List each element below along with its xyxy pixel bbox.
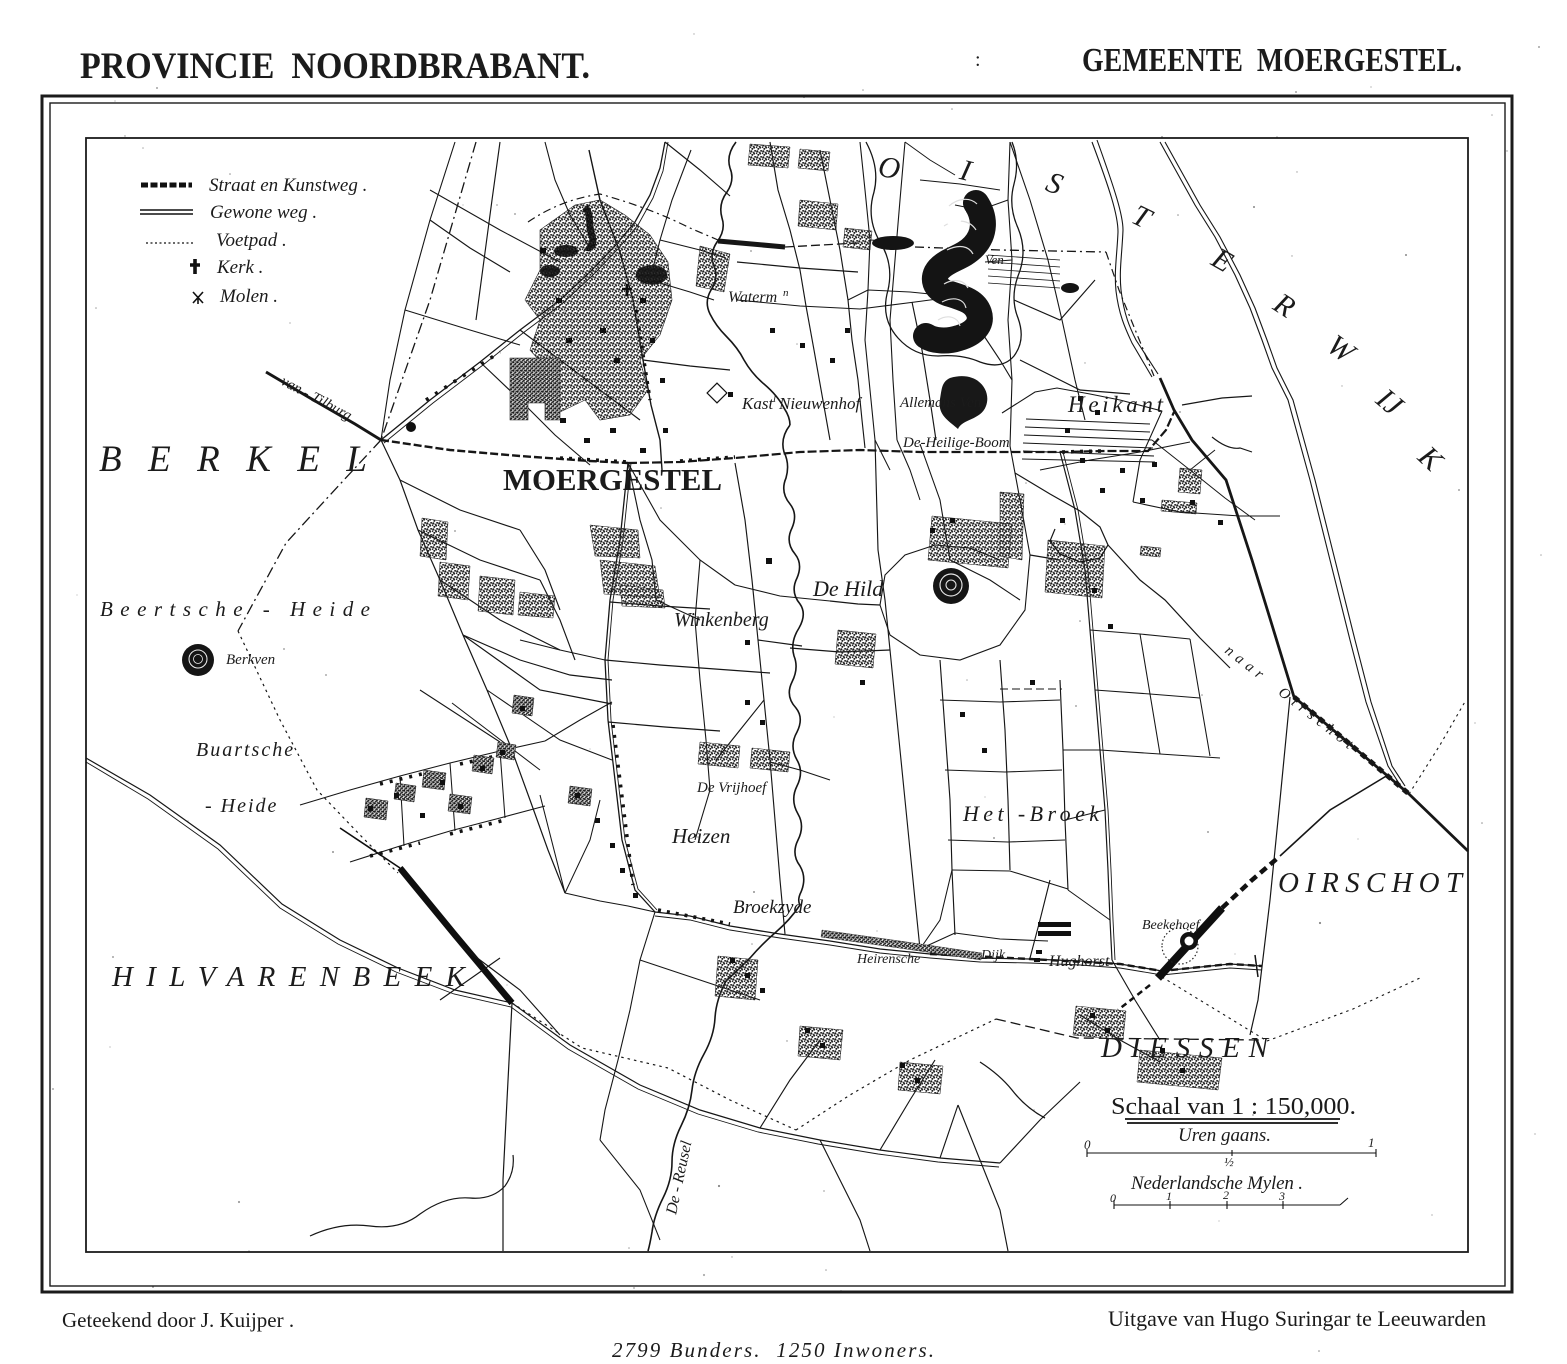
svg-text:naar Oirschot: naar Oirschot — [1222, 643, 1357, 753]
svg-text:R: R — [1267, 286, 1301, 324]
svg-text:PROVINCIE NOORDBRABANT.: PROVINCIE NOORDBRABANT. — [80, 46, 590, 87]
svg-text:I: I — [956, 153, 977, 188]
svg-text:W: W — [1321, 328, 1363, 371]
svg-text:0: 0 — [1084, 1137, 1091, 1152]
svg-text:2799 Bunders. 1250 Inwoners.: 2799 Bunders. 1250 Inwoners. — [612, 1338, 934, 1362]
svg-text:1: 1 — [1166, 1189, 1172, 1203]
svg-text:De Vrijhoef: De Vrijhoef — [696, 780, 768, 796]
svg-text:Voetpad .: Voetpad . — [216, 230, 287, 251]
svg-text:Kast: Kast — [741, 394, 774, 413]
svg-text:De Hild: De Hild — [812, 576, 884, 601]
svg-text:Ven: Ven — [985, 252, 1004, 267]
svg-text:n: n — [783, 287, 789, 299]
svg-text:HILVARENBEEK: HILVARENBEEK — [111, 961, 467, 993]
svg-text:De - Reusel: De - Reusel — [663, 1139, 695, 1217]
svg-text:Allemans Ven: Allemans Ven — [899, 395, 981, 411]
svg-text:Broekzyde: Broekzyde — [733, 897, 811, 918]
svg-text:Kerk .: Kerk . — [216, 257, 263, 278]
svg-text:Dijk: Dijk — [980, 948, 1006, 963]
svg-text:Winkenberg: Winkenberg — [674, 609, 769, 631]
svg-text:De-Heilige-Boom: De-Heilige-Boom — [902, 435, 1010, 451]
svg-text:0: 0 — [1110, 1191, 1116, 1205]
svg-text:Beekehoef: Beekehoef — [1142, 918, 1202, 933]
svg-text:Nederlandsche Mylen .: Nederlandsche Mylen . — [1130, 1173, 1303, 1194]
svg-text:½: ½ — [1224, 1154, 1234, 1169]
svg-text:van - Tilburg: van - Tilburg — [278, 373, 355, 424]
svg-text:K: K — [1411, 439, 1450, 479]
svg-text:1: 1 — [1368, 1135, 1375, 1150]
svg-text:- Heide: - Heide — [205, 795, 278, 817]
svg-text:Heikant: Heikant — [1067, 392, 1164, 417]
svg-text:Molen .: Molen . — [219, 286, 278, 307]
svg-text:IJ: IJ — [1369, 381, 1410, 423]
svg-text:Schaal van 1 : 150,000.: Schaal van 1 : 150,000. — [1111, 1094, 1356, 1120]
svg-text:Gewone weg .: Gewone weg . — [210, 202, 317, 223]
svg-text:Straat en Kunstweg .: Straat en Kunstweg . — [209, 175, 367, 196]
svg-text:Uitgave van Hugo Suringar te L: Uitgave van Hugo Suringar te Leeuwarden — [1108, 1306, 1486, 1331]
svg-text::: : — [975, 49, 981, 71]
svg-text:OIRSCHOT: OIRSCHOT — [1278, 867, 1464, 899]
svg-text:E: E — [1205, 241, 1238, 279]
svg-text:Heizen: Heizen — [671, 824, 730, 848]
svg-text:Waterm: Waterm — [728, 289, 777, 306]
svg-text:2: 2 — [1223, 1188, 1229, 1202]
svg-text:Nieuwenhof: Nieuwenhof — [778, 394, 862, 413]
svg-text:GEMEENTE MOERGESTEL.: GEMEENTE MOERGESTEL. — [1082, 42, 1462, 79]
svg-text:Uren gaans.: Uren gaans. — [1178, 1125, 1271, 1146]
svg-text:Heirensche: Heirensche — [856, 952, 920, 967]
svg-text:T: T — [1127, 198, 1159, 236]
svg-text:Beertsche - Heide: Beertsche - Heide — [100, 597, 370, 621]
svg-text:MOERGESTEL: MOERGESTEL — [503, 462, 722, 497]
svg-text:Berkven: Berkven — [226, 652, 275, 668]
svg-text:l: l — [773, 393, 776, 405]
svg-text:Buartsche: Buartsche — [196, 739, 295, 761]
svg-text:3: 3 — [1278, 1189, 1285, 1203]
svg-text:Hughorst: Hughorst — [1048, 953, 1110, 970]
svg-text:O: O — [876, 150, 903, 186]
svg-text:Geteekend door J. Kuijper .: Geteekend door J. Kuijper . — [62, 1308, 294, 1332]
svg-text:S: S — [1042, 165, 1067, 201]
svg-text:BERKEL: BERKEL — [99, 439, 367, 480]
svg-text:Het -Broek: Het -Broek — [962, 801, 1100, 826]
